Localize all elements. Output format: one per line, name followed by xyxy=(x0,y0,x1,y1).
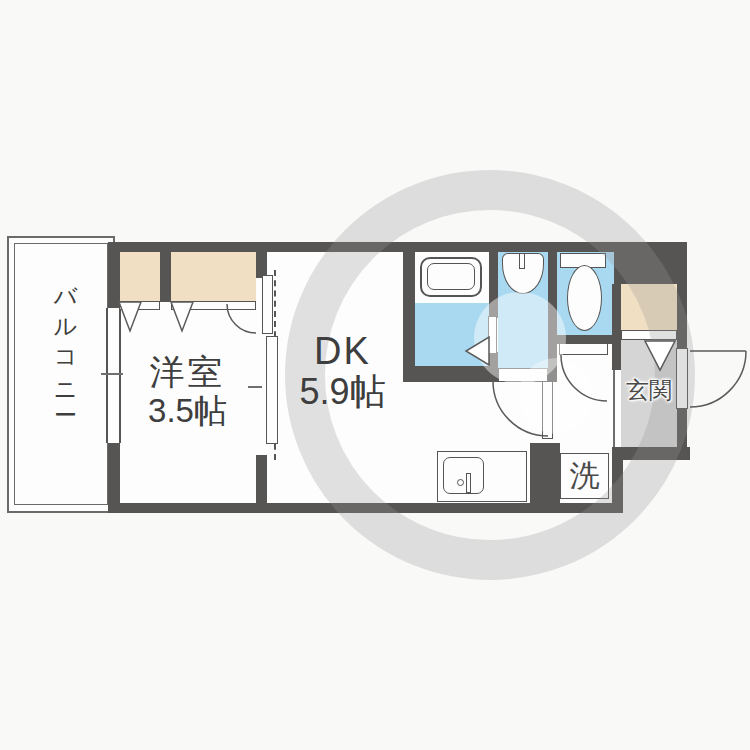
toilet-bowl-icon xyxy=(567,265,602,331)
shoe-cabinet-track xyxy=(621,330,677,340)
wall-dk-corridor-block xyxy=(530,443,560,513)
dk-name: DK xyxy=(260,330,425,372)
western-room-size: 3.5帖 xyxy=(119,392,256,430)
outline-notch xyxy=(623,460,687,513)
wall-bath-wash-divider xyxy=(489,252,498,318)
dk-door-leaf xyxy=(542,381,553,439)
dk-size: 5.9帖 xyxy=(260,372,425,412)
entrance-label: 玄関 xyxy=(619,375,679,406)
kitchen-faucet-bar-icon xyxy=(466,473,471,493)
toilet-doorway xyxy=(559,343,608,355)
western-room-name: 洋室 xyxy=(119,352,256,392)
wall-right-upper xyxy=(677,242,687,352)
shoe-cabinet xyxy=(621,284,677,330)
wall-toilet-right xyxy=(612,284,621,337)
wall-entrance-stub xyxy=(612,335,621,370)
wall-partition-stub-bottom xyxy=(256,455,267,505)
closet-right xyxy=(171,252,256,302)
bathroom-floor xyxy=(415,303,489,366)
floor-plan: 洗 バルコニー 洋室 3.5帖 DK 5.9帖 玄関 xyxy=(0,0,750,750)
closet-track-right xyxy=(171,301,256,310)
wall-wash-toilet-divider xyxy=(548,252,557,382)
balcony-label: バルコニー xyxy=(46,270,82,480)
closet-track-left xyxy=(119,301,160,310)
wall-corridor-right xyxy=(612,447,623,513)
western-room-label: 洋室 3.5帖 xyxy=(119,352,256,430)
wall-closet-divider xyxy=(160,250,171,302)
wall-partition-stub-top xyxy=(256,250,267,278)
kitchen-sink-icon xyxy=(443,457,484,494)
entrance-door-swing-arc xyxy=(690,351,746,407)
wall-below-entrance xyxy=(612,447,690,460)
sliding-door-panel-upper xyxy=(262,275,273,334)
washbasin-faucet-icon xyxy=(519,253,525,269)
washer-space-box: 洗 xyxy=(560,453,609,499)
kitchen-faucet-icon xyxy=(457,479,464,486)
dk-doorway xyxy=(498,368,548,382)
entrance-step-edge xyxy=(613,370,615,447)
washer-space-label: 洗 xyxy=(570,456,600,497)
bathroom-door-panel xyxy=(488,316,497,354)
closet-left xyxy=(119,252,160,302)
wall-bath-wash-divider-lower xyxy=(489,352,498,382)
bathtub-inner-line xyxy=(427,263,475,290)
dk-label: DK 5.9帖 xyxy=(260,330,425,412)
wall-top xyxy=(108,242,687,252)
